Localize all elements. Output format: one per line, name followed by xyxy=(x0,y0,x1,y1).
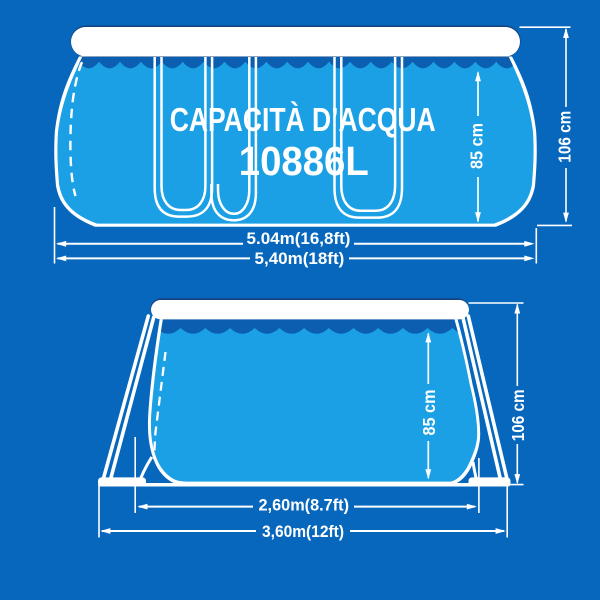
svg-text:5,40m(18ft): 5,40m(18ft) xyxy=(255,249,345,268)
svg-text:106 cm: 106 cm xyxy=(508,389,528,441)
svg-text:5.04m(16,8ft): 5.04m(16,8ft) xyxy=(247,229,351,248)
svg-text:3,60m(12ft): 3,60m(12ft) xyxy=(262,522,344,541)
svg-text:10886L: 10886L xyxy=(239,138,369,184)
svg-text:106 cm: 106 cm xyxy=(555,111,575,163)
svg-text:85 cm: 85 cm xyxy=(419,390,439,436)
svg-text:CAPACITÀ D’ACQUA: CAPACITÀ D’ACQUA xyxy=(170,101,436,139)
svg-text:85 cm: 85 cm xyxy=(466,123,486,169)
svg-text:2,60m(8.7ft): 2,60m(8.7ft) xyxy=(259,496,350,515)
